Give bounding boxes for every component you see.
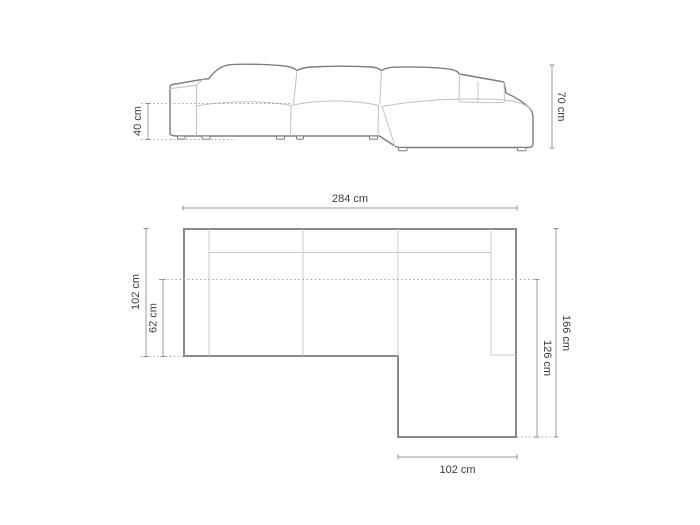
dim-total-height: 70 cm (550, 65, 568, 148)
dim-total-width: 284 cm (183, 193, 517, 211)
chaise-length-label: 126 cm (541, 340, 553, 376)
chaise-width-label: 102 cm (439, 464, 475, 476)
side-elevation-view: 40 cm 70 cm (132, 64, 567, 151)
sofa-dimension-drawing: 40 cm 70 cm 284 cm 1 (0, 0, 700, 525)
dim-total-depth: 102 cm (130, 229, 149, 357)
dim-seat-depth: 62 cm (148, 280, 166, 357)
drawing-canvas: 40 cm 70 cm 284 cm 1 (0, 0, 700, 525)
seat-depth-label: 62 cm (148, 303, 160, 333)
dim-chaise-length: 126 cm (535, 280, 554, 438)
seat-height-label: 40 cm (132, 106, 144, 136)
right-depth-label: 166 cm (560, 315, 572, 351)
sofa-plan-outline (184, 229, 516, 437)
total-depth-label: 102 cm (130, 274, 142, 310)
total-height-label: 70 cm (555, 92, 567, 122)
top-plan-view: 284 cm 102 cm 62 cm 166 cm 1 (130, 193, 572, 476)
dim-right-depth: 166 cm (554, 229, 573, 438)
total-width-label: 284 cm (332, 193, 368, 205)
dim-chaise-width: 102 cm (398, 455, 517, 477)
sofa-elevation-outline (170, 64, 533, 147)
